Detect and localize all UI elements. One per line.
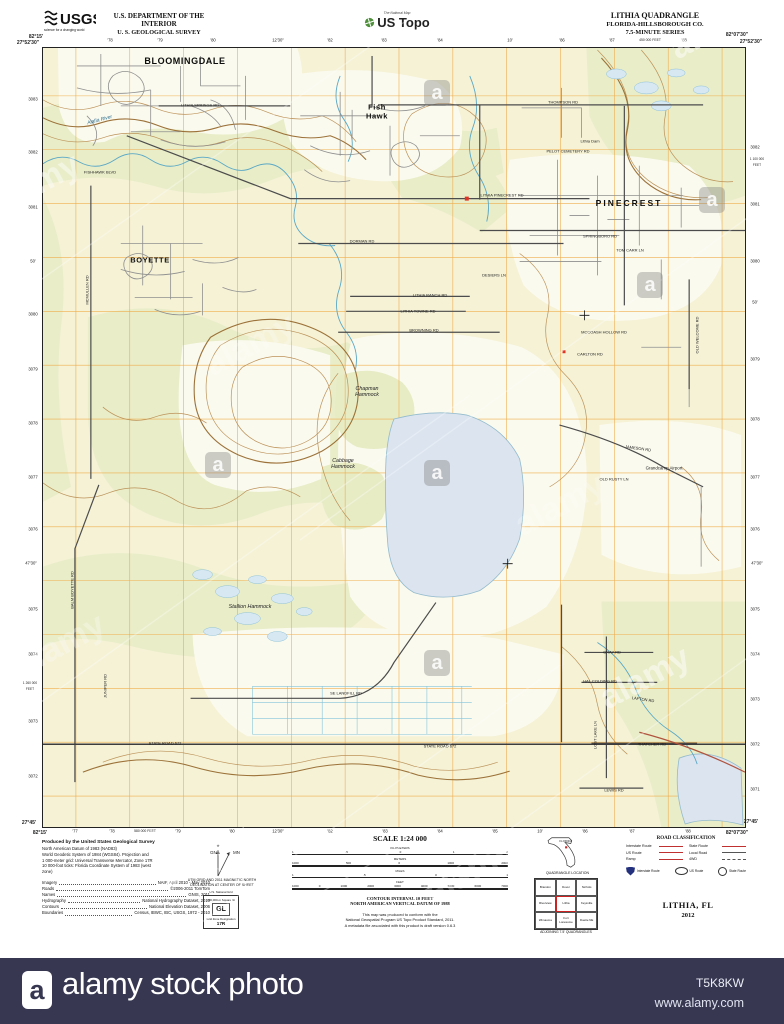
map-edge-label: 3073 — [750, 698, 759, 703]
scale-bar: KILOMETERS1.5012 — [288, 846, 512, 855]
quadrangle-location-caption: QUADRANGLE LOCATION — [520, 871, 615, 875]
map-edge-label: 3078 — [28, 422, 37, 427]
alamy-url: www.alamy.com — [655, 996, 744, 1010]
adjoining-caption: ADJOINING 7.5' QUADRANGLES — [516, 930, 616, 934]
usng-box: U.S. National Grid 100,000-m Square ID G… — [203, 890, 239, 929]
map-edge-label: 3080 — [750, 260, 759, 265]
legend-ramp-label: Ramp — [626, 857, 636, 861]
department-titles: U.S. DEPARTMENT OF THE INTERIOR U. S. GE… — [100, 12, 218, 36]
map-edge-label: 3075 — [750, 608, 759, 613]
interstate-line-swatch — [659, 846, 683, 847]
usgs-tagline: science for a changing world — [44, 28, 104, 32]
product-standard-notes: This map was produced to conform with th… — [288, 912, 512, 928]
map-edge-label: FEET — [753, 164, 761, 168]
adjoining-quad-cell: Nichols — [576, 879, 597, 896]
usgs-topo-sheet: USGS science for a changing world U.S. D… — [0, 0, 784, 1024]
map-edge-label: 1 260 000 — [23, 682, 37, 686]
scale-title: SCALE 1:24 000 — [288, 834, 512, 843]
state-route-circle-icon — [718, 867, 727, 876]
legend-usroute-label: US Route — [626, 851, 642, 855]
quad-series: 7.5-MINUTE SERIES — [560, 29, 750, 36]
map-name: LITHIA, FL — [630, 900, 746, 910]
florida-location-inset: FLORIDA — [546, 833, 588, 871]
adjoining-quad-cell: Wimauma — [535, 912, 556, 929]
quad-title: LITHIA QUADRANGLE — [560, 11, 750, 20]
scale-bar: MILES1.501 — [288, 869, 512, 878]
map-edge-label: 47'30" — [751, 562, 763, 567]
map-edge-label: 27°45' — [22, 821, 36, 827]
adjoining-quad-cell: Brandon — [535, 879, 556, 896]
ustopo-logo: The National Map US Topo — [362, 11, 432, 30]
map-edge-label: 3081 — [28, 206, 37, 211]
interstate-shield-icon — [626, 867, 635, 876]
map-edge-label: 3077 — [750, 476, 759, 481]
map-year: 2012 — [630, 912, 746, 919]
localroad-line-swatch — [722, 852, 746, 853]
adjoining-quad-cell: Duette NE — [576, 912, 597, 929]
declination-caption: UTM GRID AND 2011 MAGNETIC NORTH DECLINA… — [158, 878, 286, 887]
map-edge-label: 3076 — [28, 528, 37, 533]
declination-line2: DECLINATION AT CENTER OF SHEET — [158, 883, 286, 888]
state-route-shield-label: State Route — [729, 869, 746, 873]
road-classification-title: ROAD CLASSIFICATION — [626, 836, 746, 841]
map-edge-label: 1 100 000 — [750, 158, 764, 162]
map-edge-label: 3082 — [750, 146, 759, 151]
us-route-oval-icon — [675, 867, 688, 875]
gn-label: GN — [210, 850, 217, 855]
quad-location-dot — [565, 846, 567, 848]
map-collar-header: USGS science for a changing world U.S. D… — [0, 0, 784, 47]
interstate-shield-label: Interstate Route — [637, 869, 660, 873]
map-edge-label: 3079 — [28, 368, 37, 373]
production-credits: Produced by the United States Geological… — [42, 840, 217, 875]
mn-label: MN — [233, 850, 240, 855]
usng-title: U.S. National Grid — [203, 890, 239, 894]
map-edge-label: 3072 — [750, 743, 759, 748]
us-route-shield-label: US Route — [690, 869, 704, 873]
map-edge-label: 3074 — [28, 653, 37, 658]
florida-label: FLORIDA — [559, 839, 571, 843]
quadrangle-titles: LITHIA QUADRANGLE FLORIDA-HILLSBOROUGH C… — [560, 11, 750, 36]
map-edge-label: 47'30" — [25, 562, 37, 567]
map-edge-label: 3072 — [28, 775, 37, 780]
credit-row: BoundariesCensus, IBWC, IBC, USGS, 1972 … — [42, 910, 210, 916]
map-edge-label: 3073 — [28, 720, 37, 725]
scale-bars: KILOMETERS1.5012METERS1000500010002000MI… — [288, 846, 512, 890]
dept-line2: U. S. GEOLOGICAL SURVEY — [100, 29, 218, 36]
usng-subtitle: 100,000-m Square ID — [204, 898, 238, 902]
map-edge-label: 3082 — [28, 151, 37, 156]
map-edge-label: 3078 — [750, 418, 759, 423]
adjoining-quadrangles-grid: BrandonDoverNicholsRiverviewLithiaKeysvi… — [534, 878, 598, 930]
stateroute-line-swatch — [722, 846, 746, 847]
alamy-logo: a — [22, 971, 52, 1009]
svg-text:★: ★ — [216, 843, 220, 848]
fourwd-line-swatch — [722, 859, 746, 860]
map-edge-label: 3081 — [750, 203, 759, 208]
legend-stateroute-label: State Route — [689, 844, 708, 848]
map-edge-label: 50' — [30, 260, 35, 265]
map-collar-footer: Produced by the United States Geological… — [0, 828, 784, 958]
dept-line1: U.S. DEPARTMENT OF THE INTERIOR — [100, 12, 218, 28]
declination-diagram: ★ GN MN — [196, 842, 248, 878]
map-edge-label: 3079 — [750, 358, 759, 363]
alamy-footer-bar: a alamy stock photo T5K8KW www.alamy.com — [0, 958, 784, 1024]
topo-map-art — [43, 48, 745, 827]
scale-bar: METERS1000500010002000 — [288, 857, 512, 866]
map-edge-label: 3080 — [28, 313, 37, 318]
map-edge-label: 3076 — [750, 528, 759, 533]
adjoining-quad-cell: Dover — [556, 879, 577, 896]
adjoining-quad-cell: Keysville — [576, 896, 597, 913]
national-map-icon — [364, 17, 375, 28]
legend-localroad-label: Local Road — [689, 851, 707, 855]
svg-text:USGS: USGS — [60, 11, 96, 28]
legend-4wd-label: 4WD — [689, 857, 697, 861]
map-edge-label: 3077 — [28, 476, 37, 481]
vertical-datum-note: NORTH AMERICAN VERTICAL DATUM OF 1988 — [288, 901, 512, 906]
scale-block: SCALE 1:24 000 KILOMETERS1.5012METERS100… — [288, 834, 512, 928]
legend-interstate-label: Interstate Route — [626, 844, 652, 848]
map-edge-label: FEET — [26, 688, 34, 692]
product-note-line: A metadata file associated with this pro… — [288, 923, 512, 928]
ramp-line-swatch — [659, 859, 683, 860]
usroute-line-swatch — [659, 852, 683, 853]
map-name-block: LITHIA, FL 2012 — [630, 900, 746, 919]
scale-bar: FEET100001000200030004000500060007000 — [288, 880, 512, 889]
map-edge-label: 3074 — [750, 653, 759, 658]
adjoining-quad-cell: Fort Lonesome — [556, 912, 577, 929]
map-edge-label: 50' — [752, 301, 757, 306]
produced-line: zone) — [42, 869, 217, 875]
quad-subtitle: FLORIDA-HILLSBOROUGH CO. — [560, 21, 750, 28]
image-id: T5K8KW — [696, 976, 744, 990]
road-classification-legend: ROAD CLASSIFICATION Interstate Route US … — [626, 836, 746, 876]
ustopo-brand-text: US Topo — [377, 15, 429, 30]
map-edge-label: 3071 — [750, 788, 759, 793]
alamy-wordmark: alamy stock photo — [62, 966, 303, 1002]
adjoining-quad-cell: Lithia — [556, 896, 577, 913]
adjoining-quad-cell: Riverview — [535, 896, 556, 913]
map-edge-label: 3083 — [28, 98, 37, 103]
map-neatline — [42, 47, 746, 828]
usng-square-id: GL — [212, 903, 230, 916]
usng-zone-value: 17R — [204, 921, 238, 926]
map-edge-label: 3075 — [28, 608, 37, 613]
